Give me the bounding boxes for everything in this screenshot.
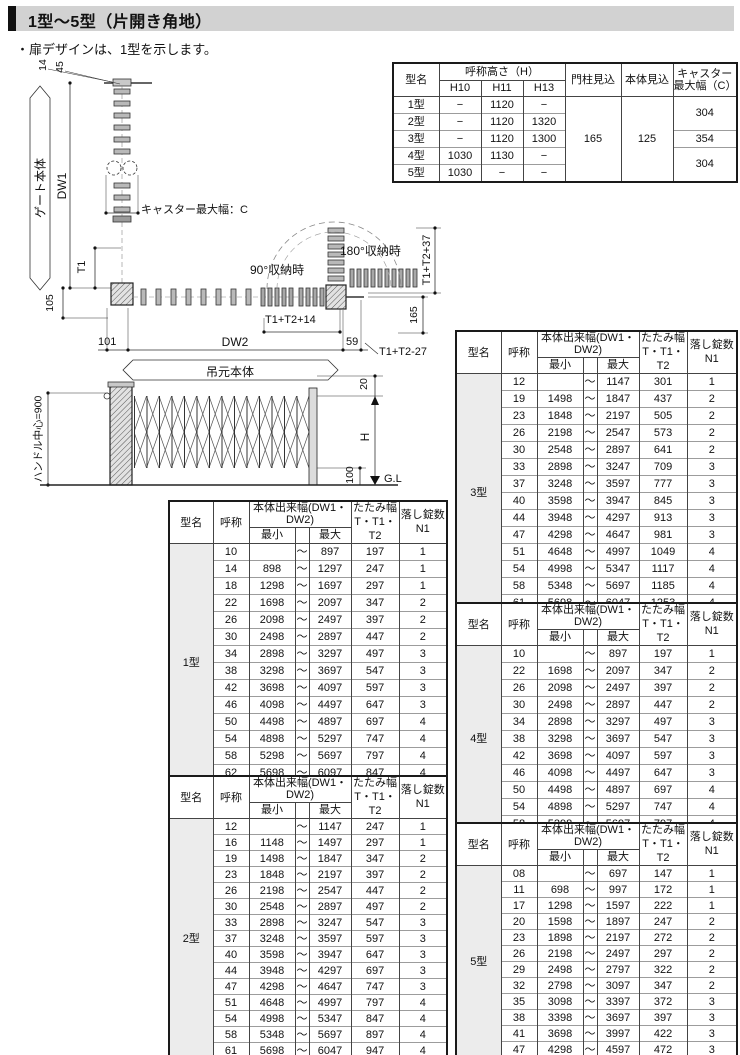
col-fold: たたみ幅T・T1・T2 xyxy=(639,603,687,646)
cell-min: 2098 xyxy=(249,612,295,629)
cell-fold: 697 xyxy=(639,782,687,799)
cell-max: 1597 xyxy=(597,898,639,914)
cell-min: 3298 xyxy=(537,731,583,748)
dim-100-label: 100 xyxy=(344,466,356,484)
cell-max: 2897 xyxy=(597,442,639,459)
cell-name: 33 xyxy=(501,459,537,476)
cell-min: 698 xyxy=(537,882,583,898)
cell-fold: 847 xyxy=(351,1011,399,1027)
cell-fold: 397 xyxy=(351,612,399,629)
cell-tilde: ～ xyxy=(583,782,597,799)
cell-lock: 2 xyxy=(399,867,447,883)
cell-min: 4298 xyxy=(537,527,583,544)
cell-max: 4497 xyxy=(597,765,639,782)
cell-fold: 981 xyxy=(639,527,687,544)
cell-fold: 597 xyxy=(639,748,687,765)
handle-icon xyxy=(104,393,110,399)
col-model: 型名 xyxy=(456,603,501,646)
cell-max: 3297 xyxy=(597,714,639,731)
cell-h11: 1120 xyxy=(481,114,523,131)
cell-lock: 3 xyxy=(399,680,447,697)
cell-tilde: ～ xyxy=(583,1010,597,1026)
cell-name: 22 xyxy=(501,663,537,680)
cell-fold: 897 xyxy=(351,1027,399,1043)
size-row: 4型10～8971971 xyxy=(456,646,737,663)
cell-name: 30 xyxy=(213,899,249,915)
cell-name: 47 xyxy=(213,979,249,995)
cell-min: 1848 xyxy=(537,408,583,425)
cell-min: 4498 xyxy=(537,782,583,799)
cell-name: 08 xyxy=(501,866,537,882)
cell-tilde: ～ xyxy=(295,1011,309,1027)
col-max: 最大 xyxy=(309,527,351,543)
cell-max: 3297 xyxy=(309,646,351,663)
cell-max: 1497 xyxy=(309,835,351,851)
cell-max: 2197 xyxy=(597,408,639,425)
cell-tilde: ～ xyxy=(295,851,309,867)
cell-name: 32 xyxy=(501,978,537,994)
cell-fold: 437 xyxy=(639,391,687,408)
cell-max: 3097 xyxy=(597,978,639,994)
cell-caster: 304 xyxy=(673,97,737,131)
dim-14-label: 14 xyxy=(37,59,49,71)
dim-165-label: 165 xyxy=(408,306,420,324)
cell-max: 2547 xyxy=(309,883,351,899)
handle-center-label: ハンドル中心=900 xyxy=(31,396,46,483)
cell-max: 1697 xyxy=(309,578,351,595)
cell-name: 37 xyxy=(213,931,249,947)
cell-lock: 3 xyxy=(687,527,737,544)
cell-lock: 2 xyxy=(687,697,737,714)
col-name: 呼称 xyxy=(213,501,249,544)
col-name: 呼称 xyxy=(213,776,249,819)
cell-lock: 3 xyxy=(399,979,447,995)
cell-h11: 1130 xyxy=(481,148,523,165)
cell-max: 4997 xyxy=(309,995,351,1011)
stored-180-cluster xyxy=(350,269,417,287)
size-table-type3: 型名 呼称 本体出来幅(DW1・DW2) たたみ幅T・T1・T2 落し錠数N1 … xyxy=(455,330,738,613)
cell-lock: 4 xyxy=(687,782,737,799)
size-table-type2: 型名 呼称 本体出来幅(DW1・DW2) たたみ幅T・T1・T2 落し錠数N1 … xyxy=(168,775,448,1055)
col-tilde-spacer xyxy=(295,527,309,543)
cell-max: 3997 xyxy=(597,1026,639,1042)
cell-max: 5297 xyxy=(309,731,351,748)
cell-fold: 747 xyxy=(351,731,399,748)
size-table-type4: 型名 呼称 本体出来幅(DW1・DW2) たたみ幅T・T1・T2 落し錠数N1 … xyxy=(455,602,738,834)
cell-lock: 2 xyxy=(399,629,447,646)
cell-lock: 2 xyxy=(399,851,447,867)
col-name: 呼称 xyxy=(501,823,537,866)
cell-min xyxy=(537,646,583,663)
section-title-bar: 1型～5型（片開き角地） xyxy=(8,6,734,31)
cell-max: 2497 xyxy=(597,946,639,962)
cell-name: 61 xyxy=(213,1043,249,1055)
cell-max: 1897 xyxy=(597,914,639,930)
cell-min: 5348 xyxy=(249,1027,295,1043)
size-row: 2型12～11472471 xyxy=(169,819,447,835)
cell-h13: − xyxy=(523,148,565,165)
cell-min: 1698 xyxy=(249,595,295,612)
col-max: 最大 xyxy=(309,802,351,818)
cell-fold: 222 xyxy=(639,898,687,914)
cell-tilde: ～ xyxy=(583,1026,597,1042)
cell-name: 30 xyxy=(501,442,537,459)
cell-tilde: ～ xyxy=(295,646,309,663)
gl-triangle-icon xyxy=(370,476,380,485)
col-fold: たたみ幅T・T1・T2 xyxy=(351,776,399,819)
cell-fold: 372 xyxy=(639,994,687,1010)
gate-body-label: ゲート本体 xyxy=(32,158,49,218)
col-name: 呼称 xyxy=(501,603,537,646)
cell-name: 40 xyxy=(213,947,249,963)
cell-fold: 297 xyxy=(351,835,399,851)
cell-max: 2197 xyxy=(309,867,351,883)
cell-lock: 1 xyxy=(399,835,447,851)
model-name-cell: 1型 xyxy=(169,544,213,783)
cell-min: 2798 xyxy=(537,978,583,994)
col-min: 最小 xyxy=(249,527,295,543)
cell-tilde: ～ xyxy=(583,898,597,914)
cell-max: 5347 xyxy=(309,1011,351,1027)
col-min: 最小 xyxy=(249,802,295,818)
cell-tilde: ～ xyxy=(295,899,309,915)
cell-fold: 247 xyxy=(351,819,399,835)
cell-min: 3098 xyxy=(537,994,583,1010)
cell-name: 19 xyxy=(213,851,249,867)
cell-tilde: ～ xyxy=(583,882,597,898)
cell-name: 54 xyxy=(213,1011,249,1027)
col-tilde-spacer xyxy=(583,849,597,865)
end-stile xyxy=(309,388,317,485)
cell-tilde: ～ xyxy=(295,915,309,931)
cell-fold: 422 xyxy=(639,1026,687,1042)
cell-fold: 797 xyxy=(351,995,399,1011)
cell-max: 2097 xyxy=(309,595,351,612)
cell-max: 2097 xyxy=(597,663,639,680)
cell-fold: 247 xyxy=(351,561,399,578)
cell-tilde: ～ xyxy=(295,714,309,731)
col-min: 最小 xyxy=(537,629,583,645)
cell-max: 997 xyxy=(597,882,639,898)
cell-max: 4097 xyxy=(309,680,351,697)
cell-max: 5347 xyxy=(597,561,639,578)
cell-lock: 1 xyxy=(399,544,447,561)
cell-lock: 1 xyxy=(399,561,447,578)
cell-min: 4098 xyxy=(249,697,295,714)
cell-max: 697 xyxy=(597,866,639,882)
cell-tilde: ～ xyxy=(583,663,597,680)
col-lock: 落し錠数N1 xyxy=(687,331,737,374)
cell-max: 4997 xyxy=(597,544,639,561)
cell-name: 26 xyxy=(213,612,249,629)
cell-lock: 2 xyxy=(687,680,737,697)
cell-lock: 4 xyxy=(399,731,447,748)
cell-tilde: ～ xyxy=(583,459,597,476)
cell-fold: 709 xyxy=(639,459,687,476)
cell-caster: 304 xyxy=(673,148,737,183)
cell-lock: 4 xyxy=(687,544,737,561)
cell-fold: 347 xyxy=(639,978,687,994)
cell-max: 4297 xyxy=(309,963,351,979)
corner-post xyxy=(111,283,133,305)
cell-max: 2197 xyxy=(597,930,639,946)
cell-tilde: ～ xyxy=(583,994,597,1010)
cell-lock: 3 xyxy=(687,1042,737,1055)
cell-fold: 845 xyxy=(639,493,687,510)
cell-max: 4597 xyxy=(597,1042,639,1055)
cell-lock: 1 xyxy=(687,646,737,663)
cell-fold: 197 xyxy=(639,646,687,663)
cell-name: 34 xyxy=(213,646,249,663)
cell-min: 2198 xyxy=(537,946,583,962)
cell-max: 3597 xyxy=(597,476,639,493)
cell-tilde: ～ xyxy=(295,663,309,680)
cell-lock: 2 xyxy=(687,962,737,978)
cell-min: 5348 xyxy=(537,578,583,595)
cell-name: 46 xyxy=(501,765,537,782)
cell-max: 3697 xyxy=(597,1010,639,1026)
spec-col-caster: キャスター最大幅（C） xyxy=(673,63,737,97)
cell-lock: 2 xyxy=(687,391,737,408)
cell-fold: 505 xyxy=(639,408,687,425)
cell-lock: 3 xyxy=(687,493,737,510)
col-width: 本体出来幅(DW1・DW2) xyxy=(249,501,351,527)
cell-name: 54 xyxy=(501,561,537,578)
cell-lock: 2 xyxy=(687,425,737,442)
cell-min: 1848 xyxy=(249,867,295,883)
cell-tilde: ～ xyxy=(583,866,597,882)
col-max: 最大 xyxy=(597,849,639,865)
dw1-label: DW1 xyxy=(55,173,69,200)
cell-min: 2198 xyxy=(537,425,583,442)
cell-pillar: 165 xyxy=(565,97,621,183)
cell-min: 4648 xyxy=(537,544,583,561)
cell-name: 38 xyxy=(501,731,537,748)
size-row: 3型12～11473011 xyxy=(456,374,737,391)
cell-min: 1598 xyxy=(537,914,583,930)
col-model: 型名 xyxy=(456,331,501,374)
cell-fold: 597 xyxy=(351,931,399,947)
cell-lock: 4 xyxy=(687,578,737,595)
model-name-cell: 2型 xyxy=(169,819,213,1055)
cell-min: 2548 xyxy=(249,899,295,915)
cell-name: 58 xyxy=(213,748,249,765)
cell-max: 5297 xyxy=(597,799,639,816)
cell-lock: 4 xyxy=(399,1043,447,1055)
cell-tilde: ～ xyxy=(583,680,597,697)
col-max: 最大 xyxy=(597,357,639,373)
cell-fold: 497 xyxy=(351,899,399,915)
size-row: 5型08～6971471 xyxy=(456,866,737,882)
cell-tilde: ～ xyxy=(583,374,597,391)
stored-90-cluster xyxy=(261,288,324,306)
cell-min: 3398 xyxy=(537,1010,583,1026)
col-model: 型名 xyxy=(169,776,213,819)
cell-name: 16 xyxy=(213,835,249,851)
cell-h11: − xyxy=(481,165,523,183)
cell-lock: 3 xyxy=(399,697,447,714)
cell-tilde: ～ xyxy=(583,493,597,510)
cell-name: 26 xyxy=(501,425,537,442)
cell-h13: − xyxy=(523,165,565,183)
cell-name: 14 xyxy=(213,561,249,578)
cell-min: 3948 xyxy=(249,963,295,979)
cell-fold: 1049 xyxy=(639,544,687,561)
cell-tilde: ～ xyxy=(295,963,309,979)
cell-tilde: ～ xyxy=(295,883,309,899)
cell-lock: 4 xyxy=(399,748,447,765)
cell-fold: 747 xyxy=(351,979,399,995)
cell-min: 4898 xyxy=(249,731,295,748)
cell-min: 1148 xyxy=(249,835,295,851)
cell-max: 2497 xyxy=(309,612,351,629)
cell-lock: 1 xyxy=(687,374,737,391)
col-width: 本体出来幅(DW1・DW2) xyxy=(537,603,639,629)
cell-name: 19 xyxy=(501,391,537,408)
cell-lock: 3 xyxy=(399,915,447,931)
cell-fold: 547 xyxy=(639,731,687,748)
cell-tilde: ～ xyxy=(295,819,309,835)
cell-tilde: ～ xyxy=(295,595,309,612)
cell-max: 1847 xyxy=(309,851,351,867)
cell-name: 35 xyxy=(501,994,537,1010)
cell-min: 4098 xyxy=(537,765,583,782)
cell-max: 4647 xyxy=(597,527,639,544)
cell-min: 4998 xyxy=(537,561,583,578)
catalog-page: 1型～5型（片開き角地） ・扉デザインは、1型を示します。 型名 呼称高さ（H）… xyxy=(0,0,740,1055)
cell-lock: 1 xyxy=(687,866,737,882)
cell-fold: 797 xyxy=(351,748,399,765)
cell-tilde: ～ xyxy=(295,578,309,595)
cell-fold: 347 xyxy=(351,595,399,612)
cell-fold: 497 xyxy=(351,646,399,663)
cell-name: 44 xyxy=(213,963,249,979)
dim-45-label: 45 xyxy=(54,61,66,73)
t1t2-minus27-label: T1+T2-27 xyxy=(379,346,427,358)
cell-max: 3397 xyxy=(597,994,639,1010)
cell-name: 23 xyxy=(501,408,537,425)
cell-max: 2897 xyxy=(309,899,351,915)
col-lock: 落し錠数N1 xyxy=(687,823,737,866)
cell-max: 3697 xyxy=(597,731,639,748)
cell-fold: 447 xyxy=(351,629,399,646)
cell-name: 11 xyxy=(501,882,537,898)
cell-lock: 2 xyxy=(687,978,737,994)
cell-name: 47 xyxy=(501,527,537,544)
cell-max: 1147 xyxy=(597,374,639,391)
cell-tilde: ～ xyxy=(583,544,597,561)
cell-tilde: ～ xyxy=(295,612,309,629)
model-name-cell: 3型 xyxy=(456,374,501,613)
plan-view xyxy=(30,69,441,380)
cell-body: 125 xyxy=(621,97,673,183)
cell-fold: 397 xyxy=(351,867,399,883)
cell-name: 44 xyxy=(501,510,537,527)
cell-lock: 1 xyxy=(687,898,737,914)
cell-name: 26 xyxy=(501,946,537,962)
cell-tilde: ～ xyxy=(583,930,597,946)
col-model: 型名 xyxy=(456,823,501,866)
col-model: 型名 xyxy=(169,501,213,544)
cell-max: 3247 xyxy=(309,915,351,931)
cell-tilde: ～ xyxy=(295,561,309,578)
cell-fold: 347 xyxy=(639,663,687,680)
cell-name: 50 xyxy=(213,714,249,731)
cell-name: 51 xyxy=(501,544,537,561)
dim-59-label: 59 xyxy=(346,336,358,348)
cell-h11: 1120 xyxy=(481,131,523,148)
cell-lock: 2 xyxy=(687,663,737,680)
cell-name: 58 xyxy=(501,578,537,595)
cell-tilde: ～ xyxy=(583,765,597,782)
cell-name: 26 xyxy=(213,883,249,899)
cell-tilde: ～ xyxy=(583,748,597,765)
cell-fold: 497 xyxy=(639,714,687,731)
cell-fold: 197 xyxy=(351,544,399,561)
cell-min: 1498 xyxy=(249,851,295,867)
col-min: 最小 xyxy=(537,849,583,865)
cell-tilde: ～ xyxy=(583,408,597,425)
cell-tilde: ～ xyxy=(295,835,309,851)
cell-max: 5697 xyxy=(597,578,639,595)
cell-min: 3298 xyxy=(249,663,295,680)
cell-tilde: ～ xyxy=(295,867,309,883)
cell-name: 29 xyxy=(501,962,537,978)
col-name: 呼称 xyxy=(501,331,537,374)
cell-lock: 2 xyxy=(399,595,447,612)
cell-min: 2198 xyxy=(249,883,295,899)
col-min: 最小 xyxy=(537,357,583,373)
cell-max: 2547 xyxy=(597,425,639,442)
cell-lock: 4 xyxy=(399,714,447,731)
col-fold: たたみ幅T・T1・T2 xyxy=(639,823,687,866)
cell-name: 46 xyxy=(213,697,249,714)
cell-lock: 3 xyxy=(687,510,737,527)
cell-tilde: ～ xyxy=(583,391,597,408)
model-name-cell: 5型 xyxy=(456,866,501,1055)
cell-max: 4497 xyxy=(309,697,351,714)
cell-lock: 3 xyxy=(687,994,737,1010)
col-width: 本体出来幅(DW1・DW2) xyxy=(537,823,639,849)
cell-tilde: ～ xyxy=(583,527,597,544)
cell-lock: 4 xyxy=(687,561,737,578)
cell-tilde: ～ xyxy=(583,561,597,578)
end-post xyxy=(326,285,346,309)
cell-tilde: ～ xyxy=(295,629,309,646)
col-width: 本体出来幅(DW1・DW2) xyxy=(249,776,351,802)
cell-max: 3697 xyxy=(309,663,351,680)
cell-lock: 2 xyxy=(687,914,737,930)
cell-tilde: ～ xyxy=(295,995,309,1011)
dw2-label: DW2 xyxy=(222,335,249,349)
cell-min: 4298 xyxy=(537,1042,583,1055)
cell-name: 33 xyxy=(213,915,249,931)
t1t2-plus14-label: T1+T2+14 xyxy=(265,314,316,326)
col-max: 最大 xyxy=(597,629,639,645)
cell-min xyxy=(537,374,583,391)
cell-lock: 1 xyxy=(687,882,737,898)
cell-fold: 447 xyxy=(351,883,399,899)
spec-col-h13: H13 xyxy=(523,81,565,97)
cell-tilde: ～ xyxy=(583,510,597,527)
cell-max: 6047 xyxy=(309,1043,351,1055)
cell-max: 4897 xyxy=(309,714,351,731)
cell-name: 12 xyxy=(501,374,537,391)
cell-lock: 2 xyxy=(687,930,737,946)
cell-tilde: ～ xyxy=(295,947,309,963)
cell-max: 3247 xyxy=(597,459,639,476)
cell-min: 2098 xyxy=(537,680,583,697)
